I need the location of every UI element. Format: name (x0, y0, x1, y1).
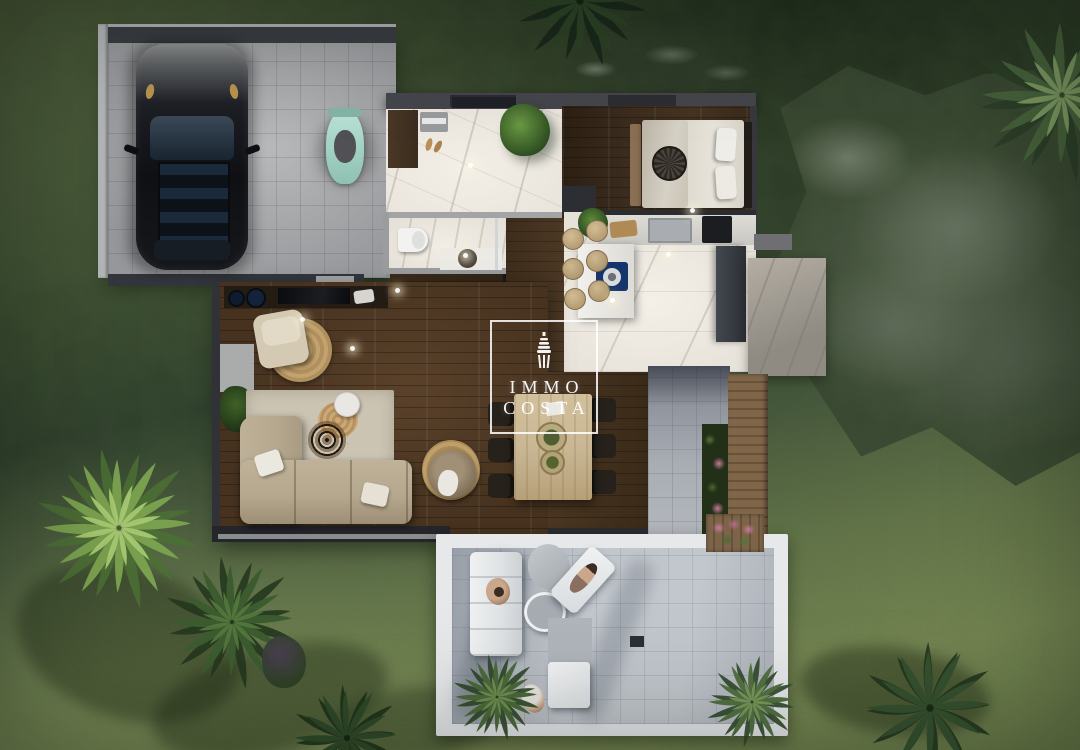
hall-closet (388, 110, 418, 168)
cutting-board (609, 220, 638, 239)
downlight (350, 346, 355, 351)
toilet-seat-line (412, 231, 425, 249)
glass-wall-frame (218, 534, 444, 539)
outdoor-pouf (548, 662, 590, 708)
downlight (463, 253, 468, 258)
sculpture (353, 289, 375, 305)
dining-chair (488, 474, 514, 498)
bath-sink-bowl (458, 249, 477, 268)
watermark-brand-line1: IMMO (503, 377, 584, 398)
downlight (395, 288, 400, 293)
bar-stool (586, 250, 608, 272)
hall-bench-towel (422, 118, 446, 124)
dining-chair (590, 434, 616, 458)
garage-wall-top (108, 24, 396, 43)
downlight (300, 317, 305, 322)
covered-terrace-shade (648, 366, 730, 406)
kitchen-tall-cabinets (716, 246, 746, 342)
dining-chair (488, 438, 514, 462)
downlight (666, 252, 671, 257)
kitchen-stove (702, 216, 732, 243)
entry-door (452, 97, 516, 108)
outdoor-mat (548, 618, 592, 662)
aerial-villa-render: IMMO COSTA (0, 0, 1080, 750)
ac-unit (754, 234, 792, 250)
vinyl-disc (228, 290, 245, 307)
shower-glass (495, 218, 498, 270)
bed-pillow (715, 165, 737, 199)
living-wall-left (212, 282, 220, 540)
bar-stool (562, 228, 584, 250)
bar-stool (588, 280, 610, 302)
kitchen-sink (648, 218, 692, 243)
bathroom-wall-left (383, 212, 389, 274)
downlight (690, 208, 695, 213)
scooter-handlebar (328, 108, 362, 117)
downlight (610, 298, 615, 303)
doormat (220, 344, 254, 392)
watermark-brand-line2: COSTA (497, 398, 591, 419)
white-side-table (334, 392, 360, 417)
garage-wall-left (98, 24, 108, 278)
flower-box-blooms (708, 516, 762, 550)
bed-bench (630, 124, 641, 206)
bed-headboard (744, 122, 752, 208)
vinyl-disc (246, 288, 266, 308)
car-rear-window (154, 240, 230, 260)
floor-drain (630, 636, 644, 647)
bush (262, 636, 306, 688)
scooter-seat (334, 130, 356, 163)
bar-stool (564, 288, 586, 310)
bed-pillow (715, 127, 737, 161)
table-centerpiece (540, 450, 565, 475)
bed-round-cushion (652, 146, 687, 181)
dining-chair (590, 470, 616, 494)
patio-marble (748, 258, 826, 376)
bar-stool (562, 258, 584, 280)
tv-screen (278, 288, 350, 304)
hall-plant (500, 104, 550, 156)
watermark-frame: IMMO COSTA (490, 320, 598, 434)
bar-stool (586, 220, 608, 242)
downlight (468, 163, 473, 168)
wire-basket-table (306, 420, 348, 460)
lighthouse-tower-icon (533, 332, 555, 368)
car-windshield (150, 116, 234, 160)
person-hair (494, 587, 504, 597)
